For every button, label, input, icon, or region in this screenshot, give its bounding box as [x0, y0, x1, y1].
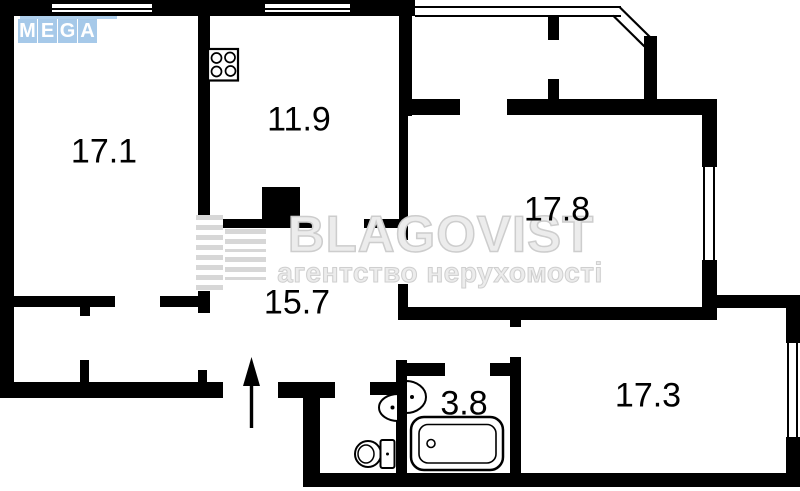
wall-bath-right	[510, 357, 521, 473]
bath-sink-icon	[406, 381, 426, 413]
stove-icon	[208, 49, 238, 81]
watermark-logo-bar-upper	[225, 229, 266, 252]
wall-wc-bath-divider	[396, 360, 407, 473]
window-loggia	[415, 6, 621, 17]
window-room-17-3	[787, 343, 798, 437]
entrance-arrow-icon	[243, 357, 260, 428]
wall-17-3-top	[713, 295, 800, 308]
window-room-17-1	[52, 2, 152, 14]
wall-17-1-bottom-right	[160, 296, 210, 307]
room-label-17-1: 17.1	[71, 133, 137, 172]
watermark-logo-bar-lower	[225, 257, 266, 280]
mega-logo-letter: A	[78, 19, 97, 43]
watermark-logo-bar-left	[196, 215, 223, 291]
mega-logo: M E G A	[18, 19, 97, 43]
wall-wc-left	[303, 395, 320, 473]
room-label-17-8: 17.8	[524, 191, 590, 230]
mega-logo-letter: M	[18, 19, 37, 43]
room-label-3-8: 3.8	[440, 385, 487, 424]
wall-loggia-right	[644, 36, 657, 100]
wall-17-3-door-stub	[510, 320, 521, 327]
wall-17-8-right-top	[702, 115, 717, 167]
window-kitchen	[265, 2, 350, 14]
wall-loggia-mullion-bottom	[548, 79, 559, 100]
wall-hall-nub-top	[80, 307, 90, 316]
wall-17-1-bottom-left	[0, 296, 115, 307]
wall-hall-stub-right	[198, 370, 207, 384]
wall-hallway-bottom	[0, 382, 223, 398]
wall-bath-top-left	[407, 363, 445, 376]
room-label-11-9: 11.9	[267, 101, 331, 140]
window-room-17-8	[703, 167, 715, 260]
wall-17-3-right-top	[786, 308, 800, 343]
wall-17-8-bottom	[398, 307, 717, 320]
wall-hall-stub-left	[80, 360, 89, 384]
room-label-15-7: 15.7	[264, 284, 330, 323]
wall-exterior-bottom-right	[303, 473, 800, 487]
wall-wc-front-stub	[370, 382, 399, 395]
floor-plan: 17.1 11.9 17.8 15.7 3.8 17.3 BLAGOVIST а…	[0, 0, 800, 491]
mega-logo-letter: G	[58, 19, 77, 43]
wall-bath-top-right	[490, 363, 512, 376]
wall-exterior-left	[0, 0, 14, 398]
mega-logo-letter: E	[38, 19, 57, 43]
wall-loggia-bottom-left	[408, 99, 460, 115]
room-label-17-3: 17.3	[615, 377, 681, 416]
bathtub-icon	[411, 417, 503, 470]
wall-loggia-bottom-right	[507, 99, 717, 115]
toilet-icon	[355, 440, 395, 468]
